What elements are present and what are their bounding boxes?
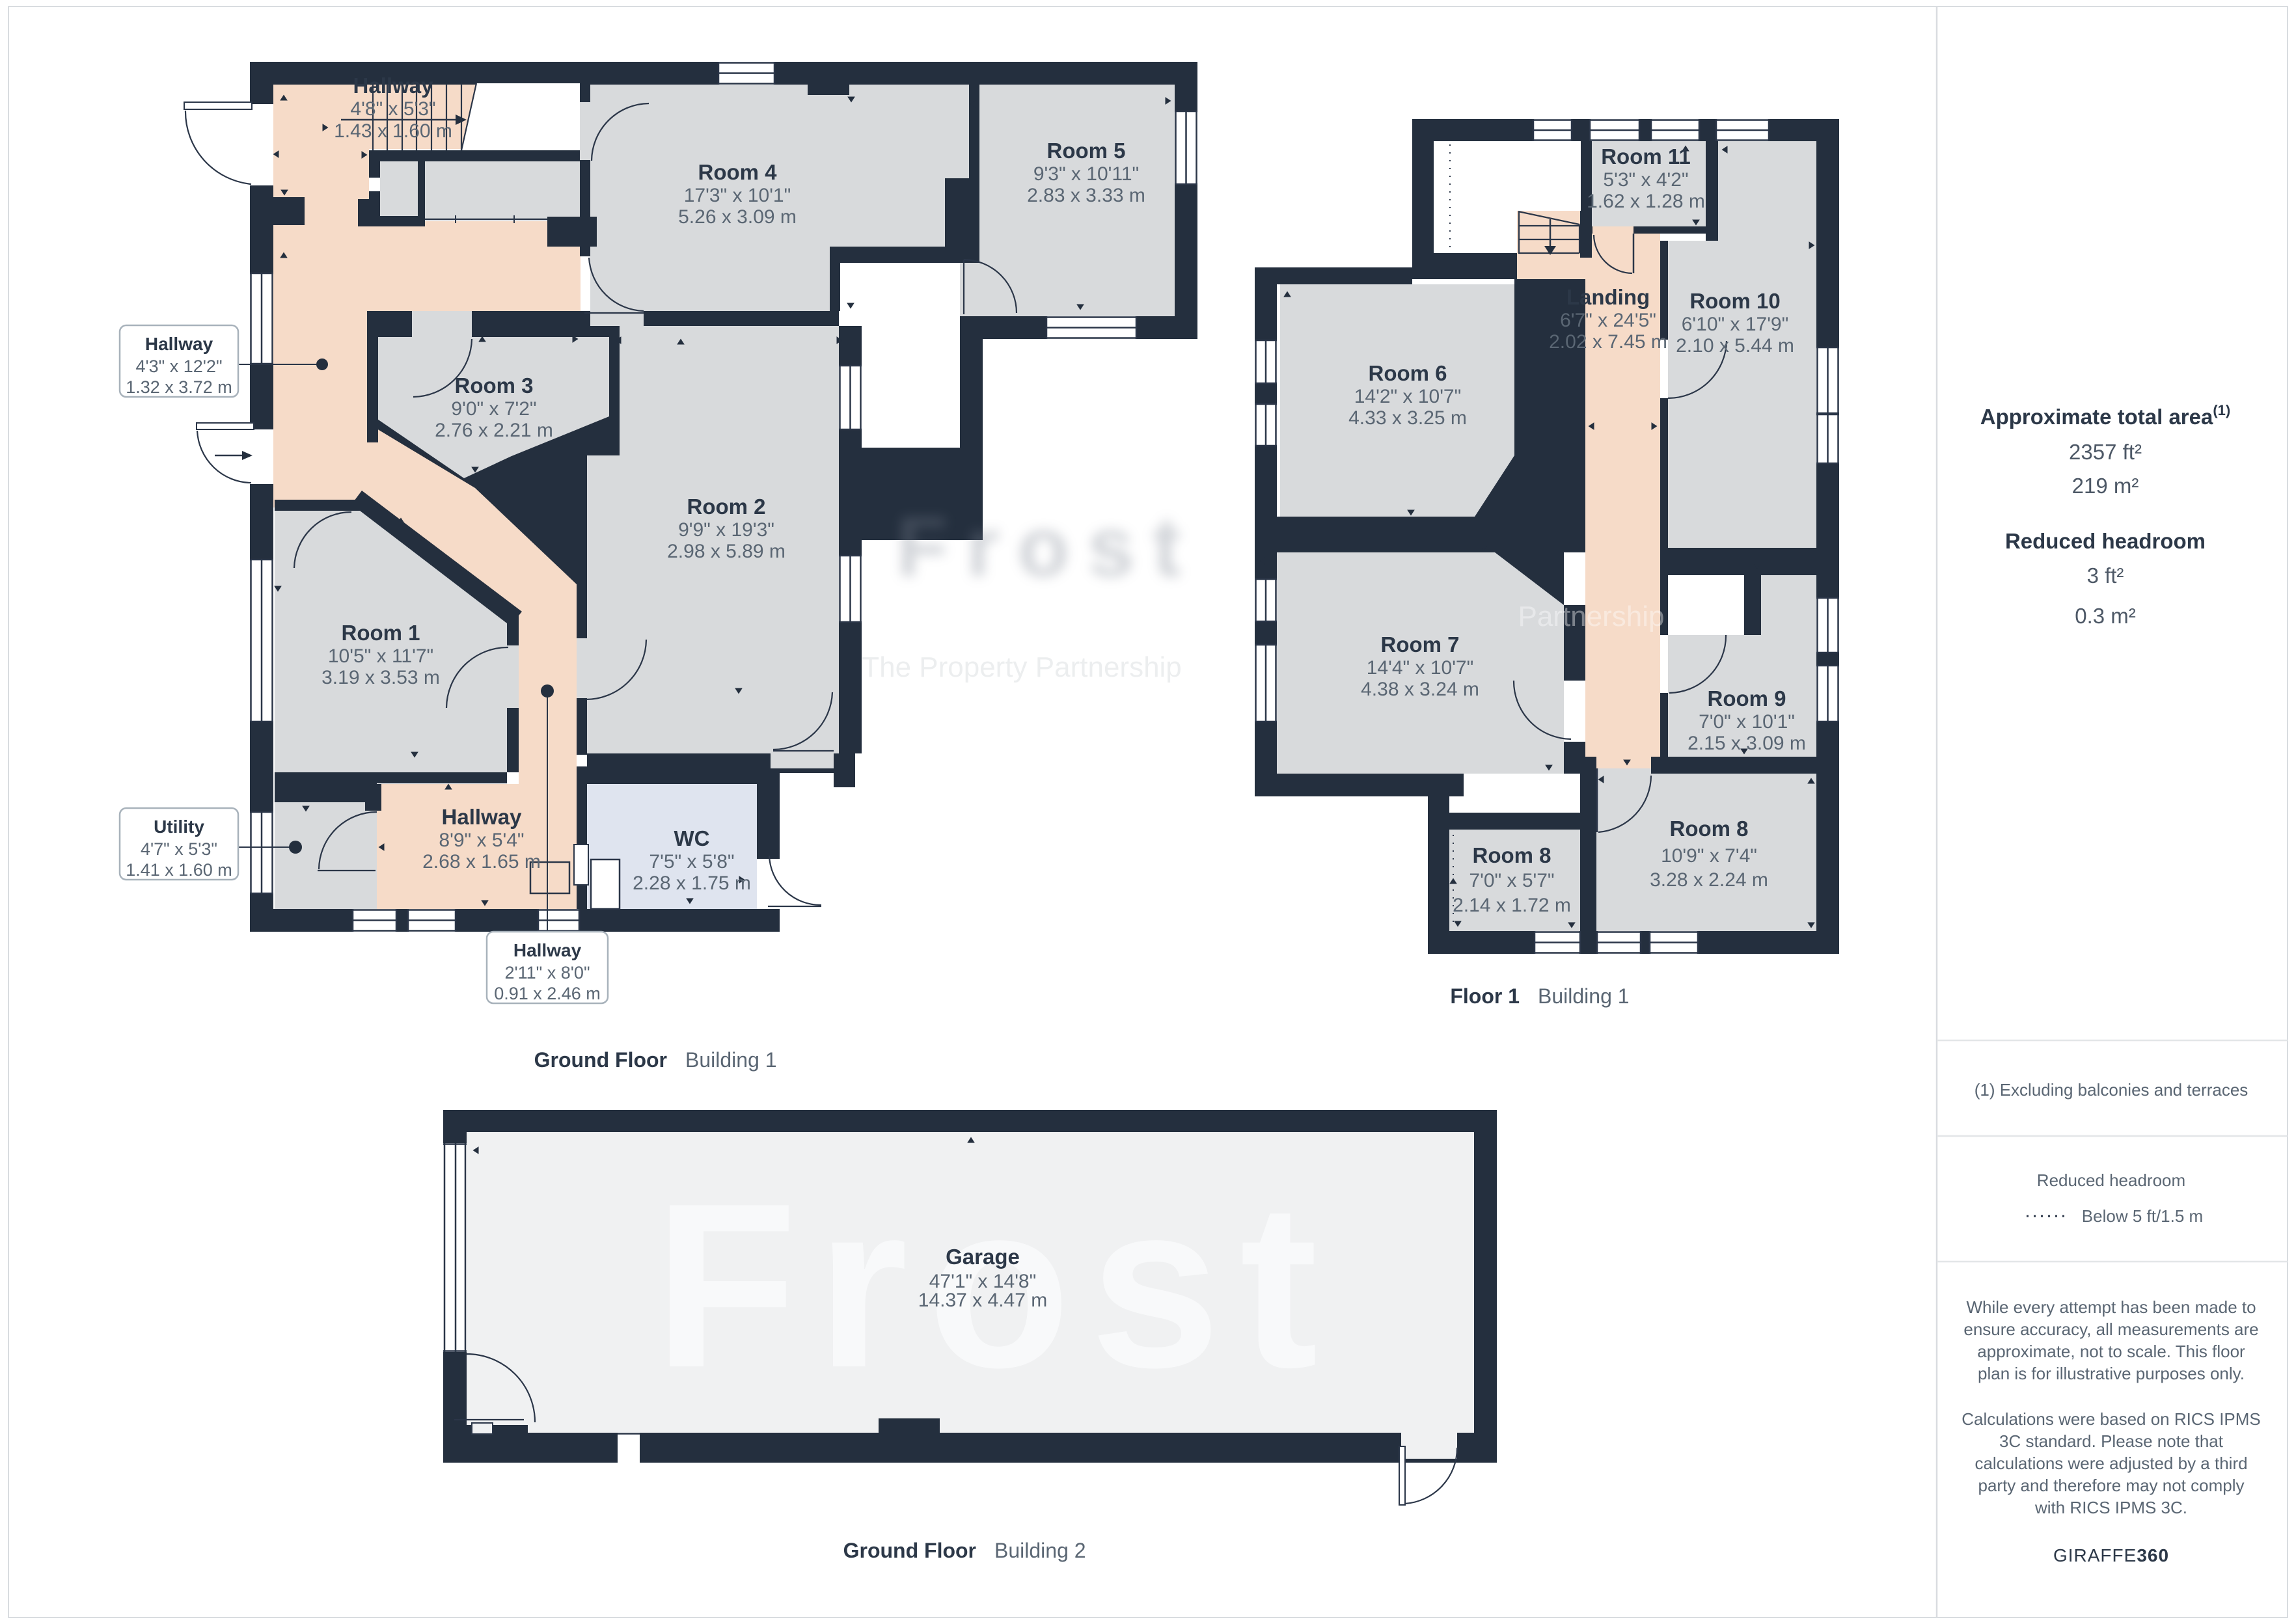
svg-text:Room 6: Room 6 bbox=[1368, 361, 1447, 385]
svg-text:GIRAFFE360: GIRAFFE360 bbox=[2053, 1545, 2169, 1565]
svg-text:Room 7: Room 7 bbox=[1380, 632, 1459, 656]
svg-text:Building 2: Building 2 bbox=[994, 1539, 1086, 1562]
svg-text:2'11" x 8'0": 2'11" x 8'0" bbox=[504, 963, 590, 982]
svg-text:Utility: Utility bbox=[154, 817, 204, 837]
svg-text:approximate, not to scale. Thi: approximate, not to scale. This floor bbox=[1977, 1342, 2245, 1361]
svg-text:17'3" x 10'1": 17'3" x 10'1" bbox=[684, 185, 791, 206]
svg-text:Hallway: Hallway bbox=[513, 940, 582, 960]
svg-text:ensure accuracy, all measureme: ensure accuracy, all measurements are bbox=[1963, 1319, 2258, 1339]
svg-text:Building 1: Building 1 bbox=[685, 1048, 777, 1072]
svg-text:(1) Excluding balconies and te: (1) Excluding balconies and terraces bbox=[1975, 1080, 2248, 1100]
svg-text:4'8" x 5'3": 4'8" x 5'3" bbox=[350, 98, 435, 120]
svg-text:Building 1: Building 1 bbox=[1538, 984, 1630, 1008]
svg-text:9'3" x 10'11": 9'3" x 10'11" bbox=[1033, 163, 1139, 185]
svg-text:5'3" x 4'2": 5'3" x 4'2" bbox=[1603, 169, 1688, 191]
svg-text:Room 10: Room 10 bbox=[1689, 289, 1780, 313]
svg-text:WC: WC bbox=[674, 826, 710, 850]
svg-text:Garage: Garage bbox=[946, 1245, 1020, 1269]
svg-text:1.32 x 3.72 m: 1.32 x 3.72 m bbox=[126, 377, 232, 397]
svg-text:Reduced headroom: Reduced headroom bbox=[2037, 1171, 2185, 1190]
svg-text:6'7" x 24'5": 6'7" x 24'5" bbox=[1560, 310, 1656, 331]
svg-text:3C standard. Please note that: 3C standard. Please note that bbox=[1999, 1431, 2224, 1451]
svg-text:3 ft²: 3 ft² bbox=[2087, 563, 2124, 588]
svg-text:Reduced headroom: Reduced headroom bbox=[2005, 529, 2206, 553]
svg-text:3.28 x 2.24 m: 3.28 x 2.24 m bbox=[1650, 869, 1768, 891]
svg-text:5.26 x 3.09 m: 5.26 x 3.09 m bbox=[678, 206, 797, 228]
svg-text:Hallway: Hallway bbox=[442, 805, 523, 829]
svg-text:7'0" x 5'7": 7'0" x 5'7" bbox=[1469, 870, 1554, 891]
svg-text:Ground Floor: Ground Floor bbox=[534, 1048, 667, 1072]
svg-text:Partnership: Partnership bbox=[1518, 601, 1664, 632]
svg-text:14'2" x 10'7": 14'2" x 10'7" bbox=[1354, 386, 1462, 407]
svg-text:Room 1: Room 1 bbox=[341, 621, 420, 645]
svg-text:Frost: Frost bbox=[897, 499, 1199, 594]
svg-text:Landing: Landing bbox=[1566, 285, 1650, 309]
svg-text:7'5" x 5'8": 7'5" x 5'8" bbox=[649, 851, 734, 873]
svg-text:Room 8: Room 8 bbox=[1472, 843, 1551, 867]
svg-text:plan is for illustrative purpo: plan is for illustrative purposes only. bbox=[1978, 1364, 2245, 1383]
svg-text:with RICS IPMS 3C.: with RICS IPMS 3C. bbox=[2034, 1498, 2187, 1517]
svg-text:9'9" x 19'3": 9'9" x 19'3" bbox=[678, 519, 774, 541]
svg-text:Room 5: Room 5 bbox=[1046, 139, 1125, 163]
svg-text:14.37 x 4.47 m: 14.37 x 4.47 m bbox=[918, 1290, 1047, 1311]
svg-text:2.10 x 5.44 m: 2.10 x 5.44 m bbox=[1676, 335, 1794, 357]
svg-text:While every attempt has been m: While every attempt has been made to bbox=[1966, 1297, 2256, 1317]
svg-text:Room 3: Room 3 bbox=[454, 373, 533, 398]
svg-text:10'9" x 7'4": 10'9" x 7'4" bbox=[1661, 845, 1757, 867]
svg-text:14'4" x 10'7": 14'4" x 10'7" bbox=[1367, 657, 1474, 679]
svg-text:Room 2: Room 2 bbox=[687, 494, 765, 519]
svg-text:Calculations were based on RIC: Calculations were based on RICS IPMS bbox=[1961, 1409, 2261, 1429]
svg-text:0.3 m²: 0.3 m² bbox=[2075, 604, 2136, 628]
svg-text:1.62 x 1.28 m: 1.62 x 1.28 m bbox=[1587, 191, 1705, 212]
svg-text:2.15 x 3.09 m: 2.15 x 3.09 m bbox=[1688, 733, 1806, 754]
svg-text:2.83 x 3.33 m: 2.83 x 3.33 m bbox=[1027, 185, 1145, 206]
svg-text:8'9" x 5'4": 8'9" x 5'4" bbox=[439, 830, 524, 851]
svg-text:party and therefore may not co: party and therefore may not comply bbox=[1978, 1476, 2245, 1495]
svg-text:4.38 x 3.24 m: 4.38 x 3.24 m bbox=[1361, 679, 1479, 700]
svg-text:2.02 x 7.45 m: 2.02 x 7.45 m bbox=[1549, 331, 1667, 353]
svg-text:3.19 x 3.53 m: 3.19 x 3.53 m bbox=[321, 667, 440, 688]
svg-text:0.91 x 2.46 m: 0.91 x 2.46 m bbox=[494, 984, 601, 1003]
svg-text:Below 5 ft/1.5 m: Below 5 ft/1.5 m bbox=[2082, 1206, 2203, 1226]
svg-text:Room 4: Room 4 bbox=[698, 160, 777, 184]
svg-text:2.14 x 1.72 m: 2.14 x 1.72 m bbox=[1453, 895, 1571, 916]
svg-text:Room 9: Room 9 bbox=[1707, 686, 1786, 710]
svg-text:1.43 x 1.60 m: 1.43 x 1.60 m bbox=[334, 120, 452, 142]
svg-text:4'7" x 5'3": 4'7" x 5'3" bbox=[141, 839, 217, 859]
svg-text:4.33 x 3.25 m: 4.33 x 3.25 m bbox=[1348, 407, 1467, 429]
svg-text:2357 ft²: 2357 ft² bbox=[2069, 440, 2142, 464]
svg-text:Floor 1: Floor 1 bbox=[1450, 984, 1520, 1008]
svg-text:7'0" x 10'1": 7'0" x 10'1" bbox=[1699, 711, 1795, 733]
svg-text:The Property Partnership: The Property Partnership bbox=[862, 651, 1182, 683]
svg-text:calculations were adjusted by: calculations were adjusted by a third bbox=[1975, 1454, 2247, 1473]
svg-text:2.68 x 1.65 m: 2.68 x 1.65 m bbox=[422, 851, 541, 873]
svg-text:Room 11: Room 11 bbox=[1601, 144, 1691, 169]
svg-text:2.76 x 2.21 m: 2.76 x 2.21 m bbox=[435, 420, 553, 441]
svg-text:Hallway: Hallway bbox=[145, 334, 213, 354]
svg-text:1.41 x 1.60 m: 1.41 x 1.60 m bbox=[126, 860, 232, 880]
svg-text:Hallway: Hallway bbox=[353, 74, 434, 98]
svg-text:Room 8: Room 8 bbox=[1669, 817, 1748, 841]
svg-text:Ground Floor: Ground Floor bbox=[843, 1539, 976, 1562]
svg-text:219 m²: 219 m² bbox=[2072, 474, 2139, 498]
svg-text:10'5" x 11'7": 10'5" x 11'7" bbox=[328, 645, 433, 667]
svg-text:2.98 x 5.89 m: 2.98 x 5.89 m bbox=[667, 541, 786, 562]
svg-text:2.28 x 1.75 m: 2.28 x 1.75 m bbox=[633, 873, 751, 894]
svg-text:6'10" x 17'9": 6'10" x 17'9" bbox=[1682, 314, 1789, 335]
svg-text:4'3" x 12'2": 4'3" x 12'2" bbox=[135, 357, 222, 376]
svg-text:9'0" x 7'2": 9'0" x 7'2" bbox=[451, 398, 536, 420]
svg-text:Approximate total area(1): Approximate total area(1) bbox=[1980, 402, 2231, 429]
